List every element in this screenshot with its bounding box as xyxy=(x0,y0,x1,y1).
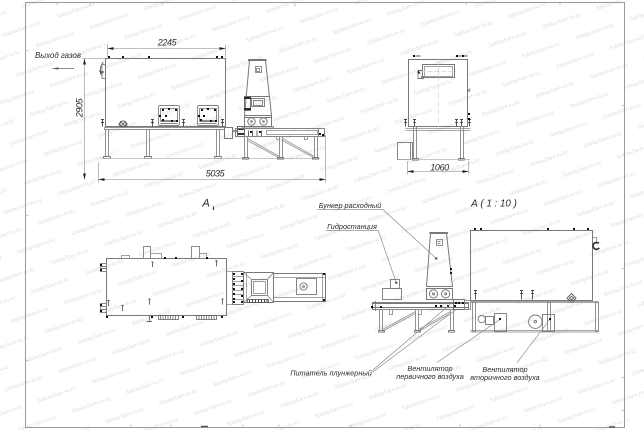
svg-text:Бункер расходный: Бункер расходный xyxy=(319,201,382,210)
svg-text:2245: 2245 xyxy=(157,38,178,48)
svg-text:первичного воздуха: первичного воздуха xyxy=(396,372,464,381)
svg-text:A: A xyxy=(201,198,209,210)
svg-text:вторичного воздуха: вторичного воздуха xyxy=(470,373,540,382)
svg-text:5035: 5035 xyxy=(206,168,226,178)
svg-text:1060: 1060 xyxy=(430,162,449,172)
svg-text:Гидростанция: Гидростанция xyxy=(327,222,377,231)
svg-text:А ( 1 : 10 ): А ( 1 : 10 ) xyxy=(470,199,517,210)
svg-text:Питатель плунжерный: Питатель плунжерный xyxy=(290,369,372,378)
svg-text:2905: 2905 xyxy=(75,97,85,118)
svg-text:Выход газов: Выход газов xyxy=(35,51,81,60)
